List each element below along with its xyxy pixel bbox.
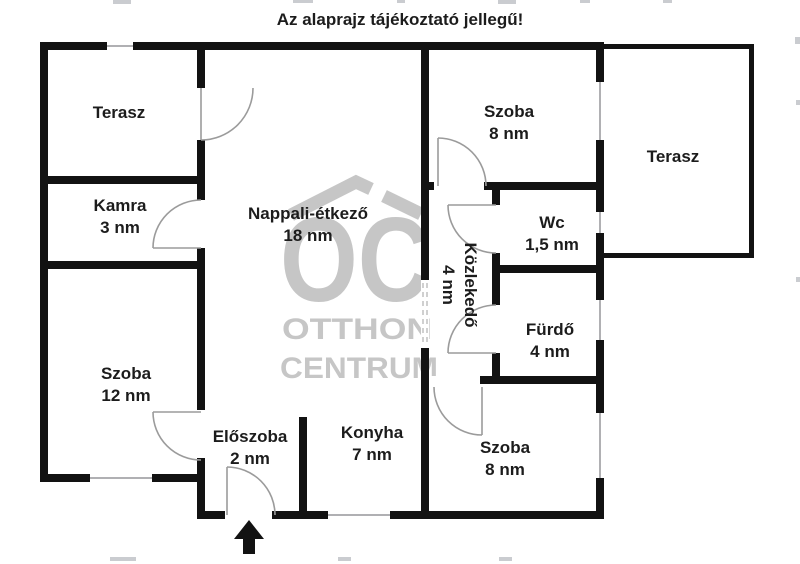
room-area: 4 nm [526,341,574,363]
edge-mark [580,0,590,3]
door-szoba12-icon [153,412,201,460]
room-label-nappali-etkezo: Nappali-étkező 18 nm [248,203,368,247]
floorplan-canvas: OC OTTHON CENTRUM [0,0,800,564]
room-label-kozlekedo: Közlekedő 4 nm [437,242,481,327]
room-label-wc: Wc 1,5 nm [525,212,579,256]
room-area: 1,5 nm [525,234,579,256]
room-label-szoba-12: Szoba 12 nm [101,363,151,407]
door-opening [197,410,205,458]
room-name: Terasz [93,102,146,124]
room-area: 8 nm [480,459,530,481]
room-name: Szoba [484,101,534,123]
door-opening [434,182,484,190]
room-name: Wc [525,212,579,234]
room-name: Fürdő [526,319,574,341]
room-area: 7 nm [341,444,403,466]
edge-mark [113,0,131,4]
passage-opening [421,280,429,348]
door-szoba8-top-icon [438,138,486,186]
door-entrance-icon [227,467,275,515]
door-kamra-icon [153,200,201,248]
room-area: 2 nm [213,448,288,470]
door-opening [429,376,480,384]
entrance-arrow-shaft [243,538,255,554]
door-opening [492,205,500,253]
edge-mark [796,277,800,282]
room-area: 3 nm [94,217,147,239]
room-area: 18 nm [248,225,368,247]
room-area: 8 nm [484,123,534,145]
wall-segment [299,417,307,519]
watermark-line1: OTTHON [282,313,432,346]
edge-mark [498,0,516,4]
entrance-arrow-head [234,520,264,539]
room-name: Kamra [94,195,147,217]
room-label-terasz-left: Terasz [93,102,146,124]
edge-mark [795,37,800,44]
room-name: Előszoba [213,426,288,448]
door-szoba8-bottom-icon [434,387,482,435]
edge-mark [499,557,512,561]
edge-mark [397,0,405,3]
room-label-furdo: Fürdő 4 nm [526,319,574,363]
watermark-line2: CENTRUM [280,352,438,385]
edge-mark [663,0,672,3]
room-label-szoba-8-top: Szoba 8 nm [484,101,534,145]
room-label-konyha: Konyha 7 nm [341,422,403,466]
room-name: Nappali-étkező [248,203,368,225]
door-opening [197,200,205,248]
edge-mark [293,0,313,3]
entrance-arrow-icon [234,520,264,554]
room-name: Közlekedő [459,242,481,327]
wall-segment [492,265,604,273]
floorplan: Az alaprajz tájékoztató jellegű! OC OTTH… [0,0,800,564]
room-name: Terasz [647,146,700,168]
edge-mark [338,557,351,561]
edge-mark [110,557,136,561]
door-terasz-icon [201,88,253,140]
terrace-wall-segment [604,44,754,49]
door-opening [225,511,272,519]
terrace-wall-segment [604,253,754,258]
room-label-szoba-8-bottom: Szoba 8 nm [480,437,530,481]
terrace-wall-segment [749,44,754,258]
room-label-eloszoba: Előszoba 2 nm [213,426,288,470]
room-name: Szoba [480,437,530,459]
room-name: Konyha [341,422,403,444]
edge-mark [796,100,800,105]
wall-segment [40,176,205,184]
room-name: Szoba [101,363,151,385]
room-label-kamra: Kamra 3 nm [94,195,147,239]
room-label-terasz-right: Terasz [647,146,700,168]
room-area: 12 nm [101,385,151,407]
door-opening [492,305,500,353]
room-area: 4 nm [437,242,459,327]
wall-segment [40,261,205,269]
